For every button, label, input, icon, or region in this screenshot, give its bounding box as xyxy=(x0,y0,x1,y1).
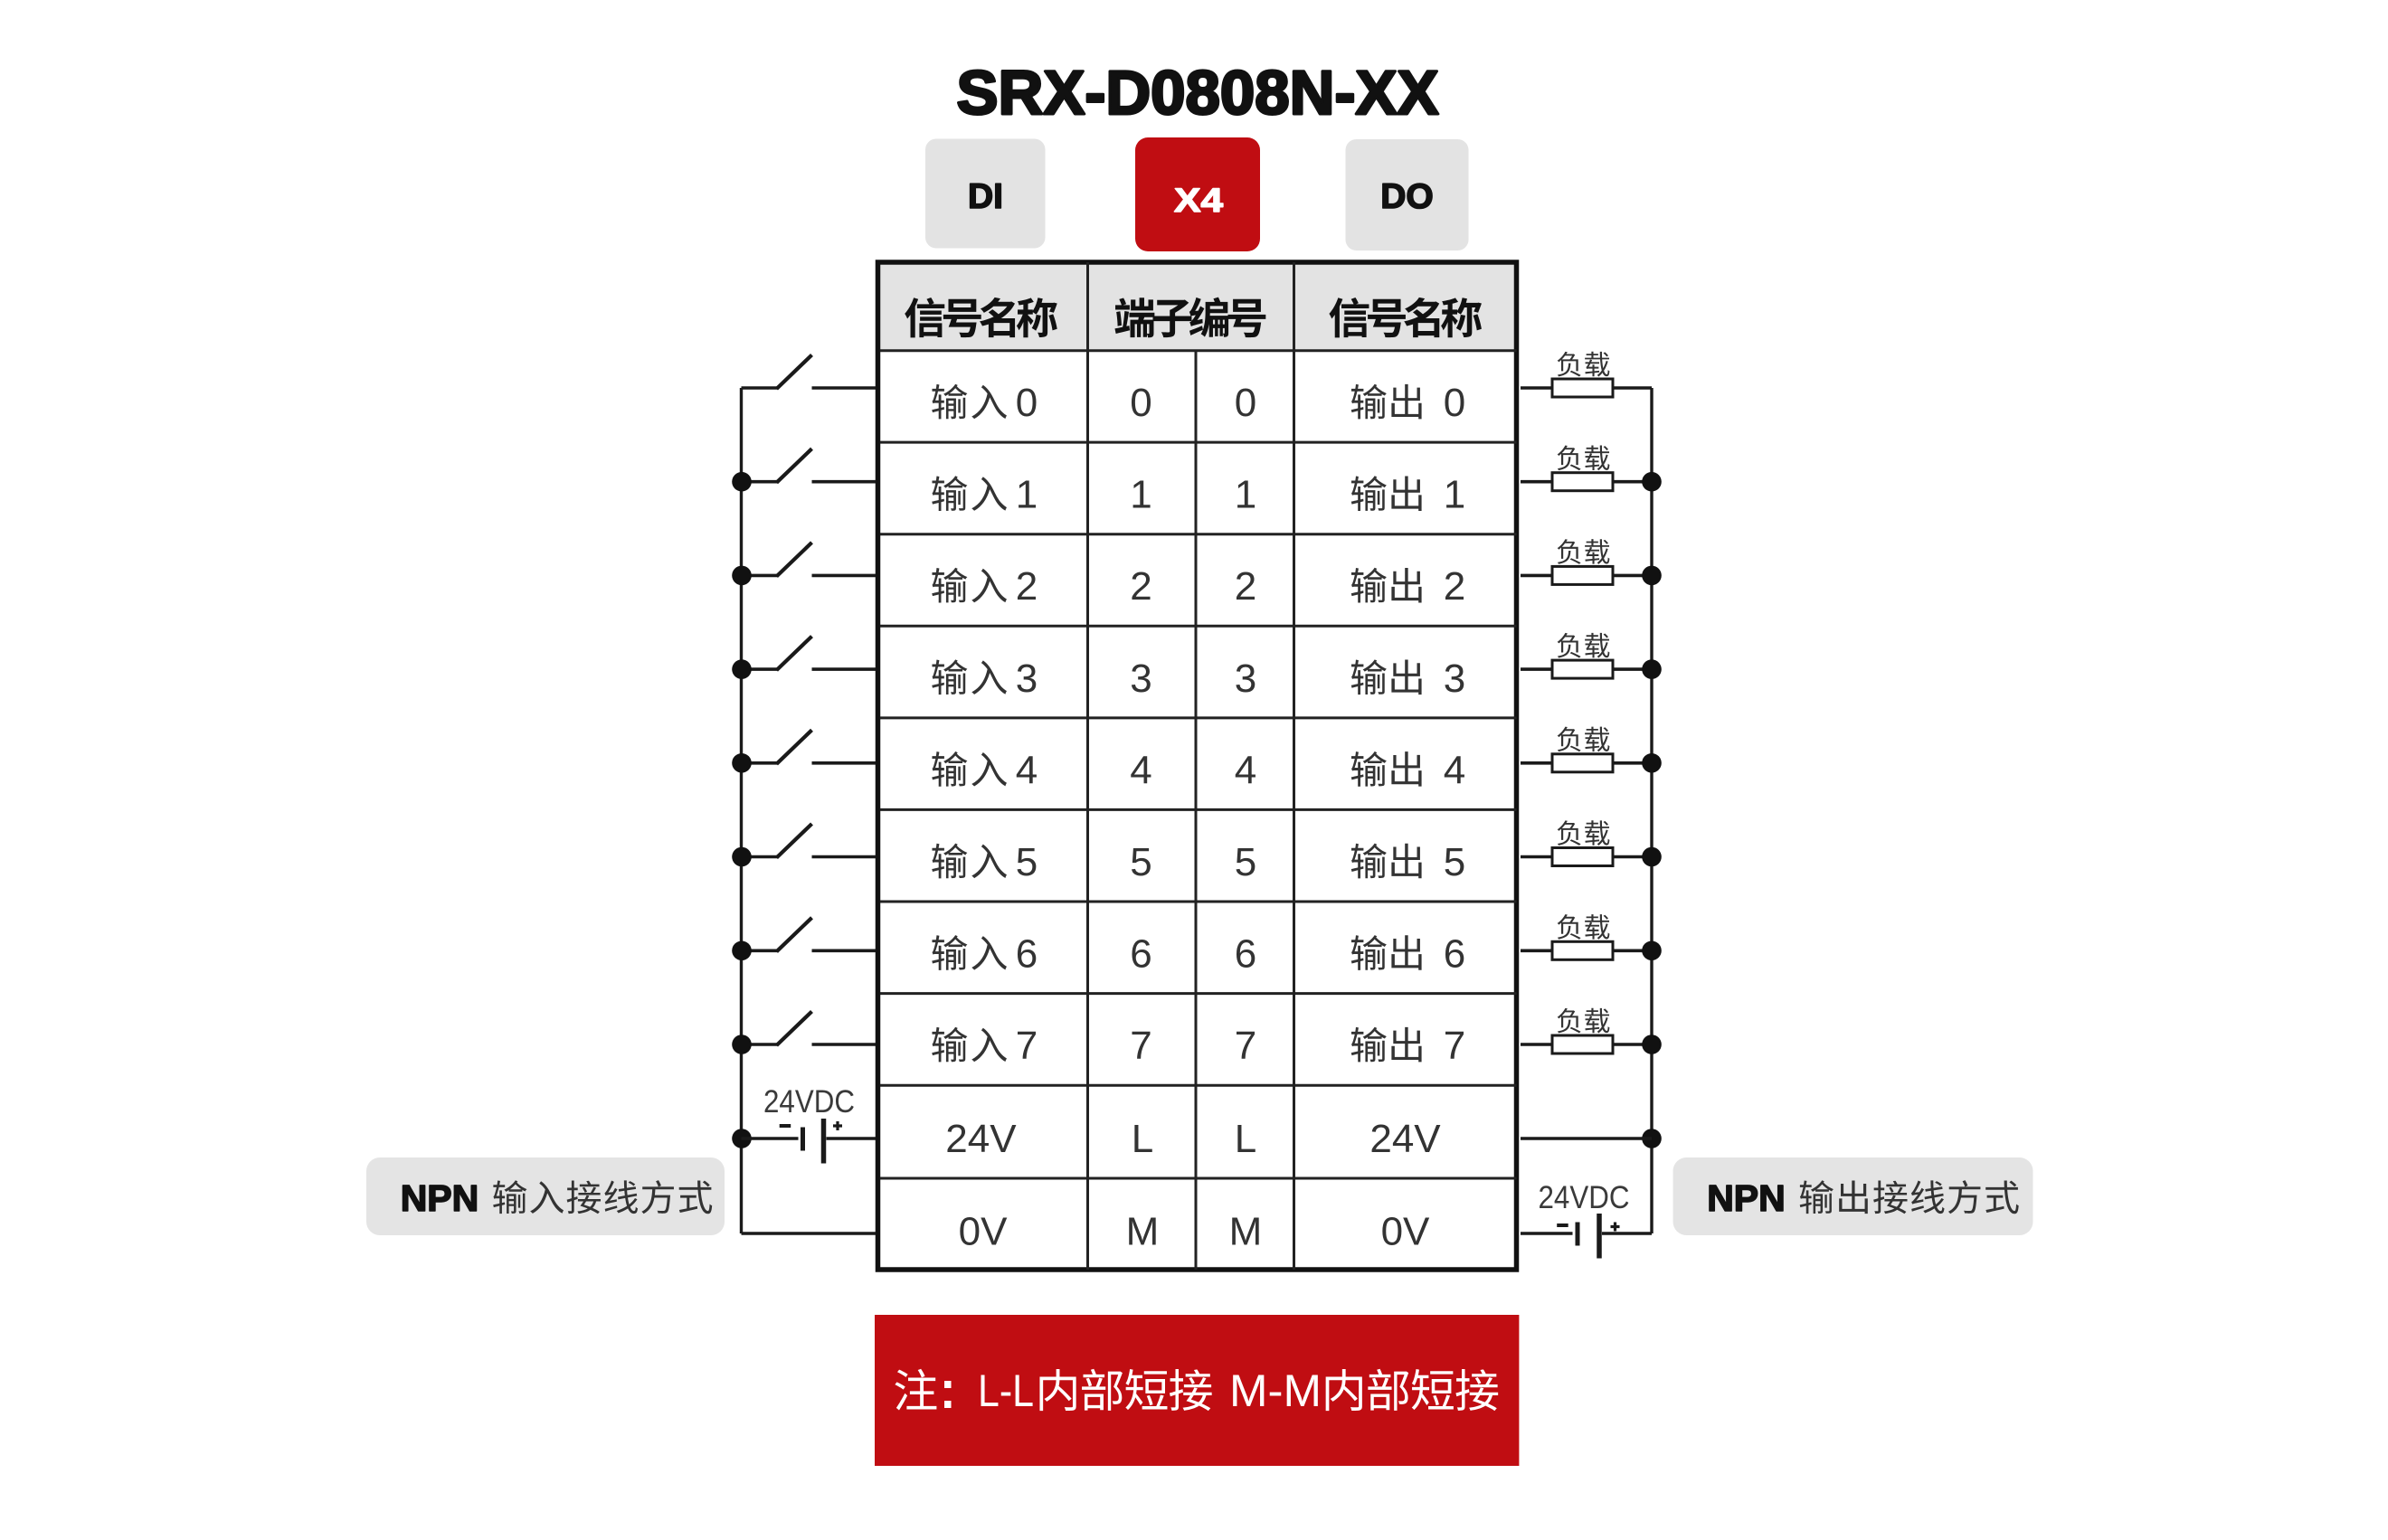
svg-text:2: 2 xyxy=(1444,564,1465,609)
svg-text:0: 0 xyxy=(1235,381,1256,425)
svg-text:DO: DO xyxy=(1380,177,1434,216)
svg-text:1: 1 xyxy=(1444,473,1465,517)
svg-text:SRX-D0808N-XX: SRX-D0808N-XX xyxy=(956,58,1438,128)
svg-text:X4: X4 xyxy=(1174,182,1223,219)
svg-text:4: 4 xyxy=(1235,748,1256,792)
svg-text:3: 3 xyxy=(1444,657,1465,701)
svg-text:7: 7 xyxy=(1235,1024,1256,1068)
svg-text:0: 0 xyxy=(1444,381,1465,425)
svg-text:3: 3 xyxy=(1235,657,1256,701)
svg-text:0V: 0V xyxy=(959,1210,1008,1254)
svg-text:4: 4 xyxy=(1130,748,1151,792)
svg-text:M-M: M-M xyxy=(1229,1365,1322,1416)
svg-text:1: 1 xyxy=(1130,473,1151,517)
svg-text:7: 7 xyxy=(1130,1024,1151,1068)
svg-text:3: 3 xyxy=(1130,657,1151,701)
svg-text:1: 1 xyxy=(1016,473,1038,517)
svg-text:7: 7 xyxy=(1444,1024,1465,1068)
svg-text:24VDC: 24VDC xyxy=(763,1084,855,1120)
svg-text:DI: DI xyxy=(968,177,1003,216)
svg-text:4: 4 xyxy=(1016,748,1038,792)
svg-text:0: 0 xyxy=(1130,381,1151,425)
svg-text:2: 2 xyxy=(1130,564,1151,609)
svg-text:M: M xyxy=(1126,1210,1160,1254)
svg-text:24V: 24V xyxy=(945,1117,1017,1161)
svg-text:1: 1 xyxy=(1235,473,1256,517)
svg-text:5: 5 xyxy=(1444,840,1465,884)
svg-text:6: 6 xyxy=(1016,932,1038,977)
svg-text:7: 7 xyxy=(1016,1024,1038,1068)
svg-text:6: 6 xyxy=(1130,932,1151,977)
svg-text:6: 6 xyxy=(1235,932,1256,977)
svg-text:3: 3 xyxy=(1016,657,1038,701)
svg-text:NPN: NPN xyxy=(401,1177,479,1219)
svg-text:L: L xyxy=(1235,1117,1256,1161)
svg-text:0V: 0V xyxy=(1381,1210,1430,1254)
svg-text:5: 5 xyxy=(1235,840,1256,884)
svg-text:M: M xyxy=(1229,1210,1263,1254)
svg-text:L: L xyxy=(1132,1117,1153,1161)
svg-text:24V: 24V xyxy=(1369,1117,1441,1161)
svg-text:2: 2 xyxy=(1016,564,1038,609)
svg-text:5: 5 xyxy=(1130,840,1151,884)
svg-text:24VDC: 24VDC xyxy=(1539,1180,1630,1215)
svg-text:6: 6 xyxy=(1444,932,1465,977)
svg-text:4: 4 xyxy=(1444,748,1465,792)
svg-text:2: 2 xyxy=(1235,564,1256,609)
svg-text:L-L: L-L xyxy=(978,1365,1034,1416)
svg-text:5: 5 xyxy=(1016,840,1038,884)
svg-text:NPN: NPN xyxy=(1707,1177,1786,1219)
svg-text:0: 0 xyxy=(1016,381,1038,425)
